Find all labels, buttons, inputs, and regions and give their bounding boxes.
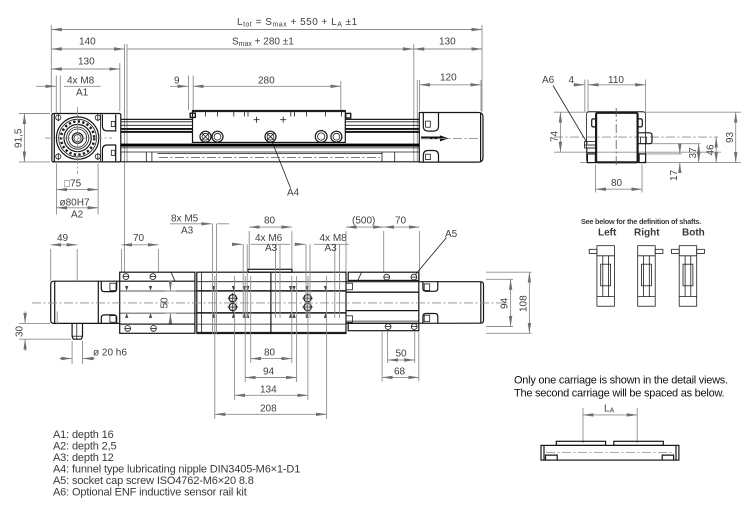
svg-text:A3: A3 <box>265 243 278 254</box>
svg-text:Only one carriage is shown in: Only one carriage is shown in the detail… <box>514 375 728 387</box>
svg-text:A3: A3 <box>181 226 194 237</box>
svg-text:17: 17 <box>669 169 680 181</box>
svg-text:130: 130 <box>439 37 456 48</box>
svg-text:37: 37 <box>688 147 699 159</box>
svg-text:94: 94 <box>263 367 275 378</box>
svg-text:80: 80 <box>264 215 276 226</box>
svg-text:49: 49 <box>57 233 69 244</box>
svg-text:4x M8: 4x M8 <box>67 75 95 86</box>
svg-text:80: 80 <box>611 178 623 189</box>
svg-text:A2: depth 2,5: A2: depth 2,5 <box>53 441 117 453</box>
svg-text:The second carriage will be sp: The second carriage will be spaced as be… <box>514 388 725 400</box>
svg-text:Right: Right <box>634 228 660 239</box>
svg-text:30: 30 <box>14 325 25 337</box>
svg-text:110: 110 <box>608 75 624 86</box>
svg-text:A4: A4 <box>287 188 300 199</box>
svg-text:70: 70 <box>133 233 145 244</box>
svg-text:94: 94 <box>500 297 511 309</box>
svg-text:9: 9 <box>174 75 180 86</box>
svg-text:A3: depth 12: A3: depth 12 <box>53 452 114 464</box>
svg-text:Smax + 280 ±1: Smax + 280 ±1 <box>232 37 294 49</box>
svg-text:Both: Both <box>682 228 705 239</box>
svg-text:A5: socket cap screw ISO4762-M: A5: socket cap screw ISO4762-M6×20 8.8 <box>53 475 254 487</box>
svg-text:Left: Left <box>598 228 617 239</box>
svg-text:91,5: 91,5 <box>14 128 25 148</box>
svg-text:See below for the definition o: See below for the definition of shafts. <box>581 217 701 226</box>
svg-text:A4: funnel type lubricating ni: A4: funnel type lubricating nipple DIN34… <box>53 464 300 476</box>
svg-text:LA: LA <box>604 404 615 415</box>
svg-text:70: 70 <box>395 215 407 226</box>
svg-text:93: 93 <box>725 131 736 143</box>
svg-text:A3: A3 <box>325 243 338 254</box>
svg-text:ø 20 h6: ø 20 h6 <box>93 348 127 359</box>
svg-text:□75: □75 <box>64 179 82 190</box>
svg-text:ø80H7: ø80H7 <box>60 197 90 208</box>
svg-text:A6: Optional ENF inductive sen: A6: Optional ENF inductive sensor rail k… <box>53 487 247 499</box>
svg-text:A5: A5 <box>445 229 458 240</box>
svg-text:50: 50 <box>396 349 408 360</box>
svg-text:74: 74 <box>550 130 561 142</box>
svg-text:68: 68 <box>394 366 406 377</box>
svg-text:A1: depth 16: A1: depth 16 <box>53 429 114 441</box>
svg-text:A1: A1 <box>76 87 89 98</box>
svg-text:130: 130 <box>78 57 95 68</box>
svg-text:208: 208 <box>260 403 277 414</box>
svg-text:Ltot = Smax + 550 + LA ±1: Ltot = Smax + 550 + LA ±1 <box>237 17 358 29</box>
svg-text:120: 120 <box>440 72 457 83</box>
svg-text:A2: A2 <box>71 210 84 221</box>
svg-text:280: 280 <box>258 75 275 86</box>
svg-text:50: 50 <box>160 297 171 309</box>
svg-text:46: 46 <box>706 144 717 156</box>
svg-text:A6: A6 <box>542 75 555 86</box>
svg-text:108: 108 <box>519 295 530 312</box>
svg-text:(500): (500) <box>352 215 375 226</box>
svg-text:134: 134 <box>260 384 277 395</box>
svg-text:8x M5: 8x M5 <box>171 214 199 225</box>
svg-text:140: 140 <box>79 37 96 48</box>
svg-text:80: 80 <box>264 348 276 359</box>
svg-text:4: 4 <box>569 75 575 86</box>
